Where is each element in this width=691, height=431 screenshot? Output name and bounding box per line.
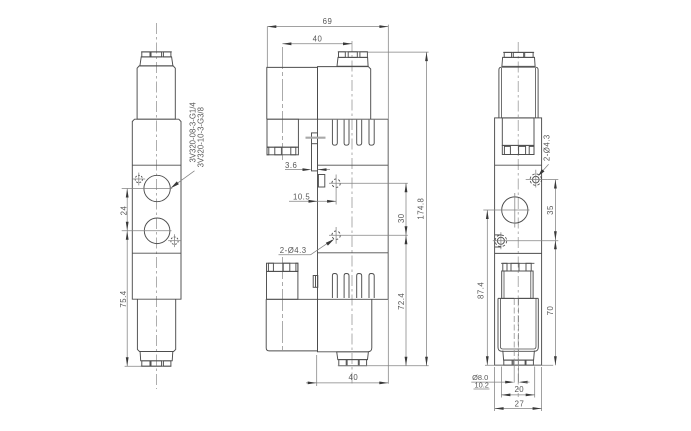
svg-text:27: 27: [515, 399, 525, 408]
svg-text:40: 40: [313, 34, 323, 43]
svg-text:174.8: 174.8: [417, 198, 426, 220]
svg-text:2-Ø4.3: 2-Ø4.3: [280, 246, 307, 255]
svg-text:75.4: 75.4: [119, 290, 128, 307]
svg-text:35: 35: [546, 205, 555, 215]
svg-text:72.4: 72.4: [397, 293, 406, 310]
svg-text:20: 20: [514, 385, 524, 394]
svg-text:24: 24: [119, 206, 128, 216]
svg-text:40: 40: [349, 373, 359, 382]
svg-text:10.5: 10.5: [293, 192, 310, 201]
svg-text:2-Ø4.3: 2-Ø4.3: [543, 134, 552, 161]
svg-text:69: 69: [323, 17, 333, 26]
svg-text:3.6: 3.6: [285, 161, 297, 170]
svg-text:10.2: 10.2: [475, 381, 489, 390]
svg-text:30: 30: [397, 213, 406, 223]
svg-text:3V320-10-3-G3/8: 3V320-10-3-G3/8: [197, 107, 206, 167]
svg-text:87.4: 87.4: [477, 282, 486, 299]
svg-text:70: 70: [546, 306, 555, 316]
